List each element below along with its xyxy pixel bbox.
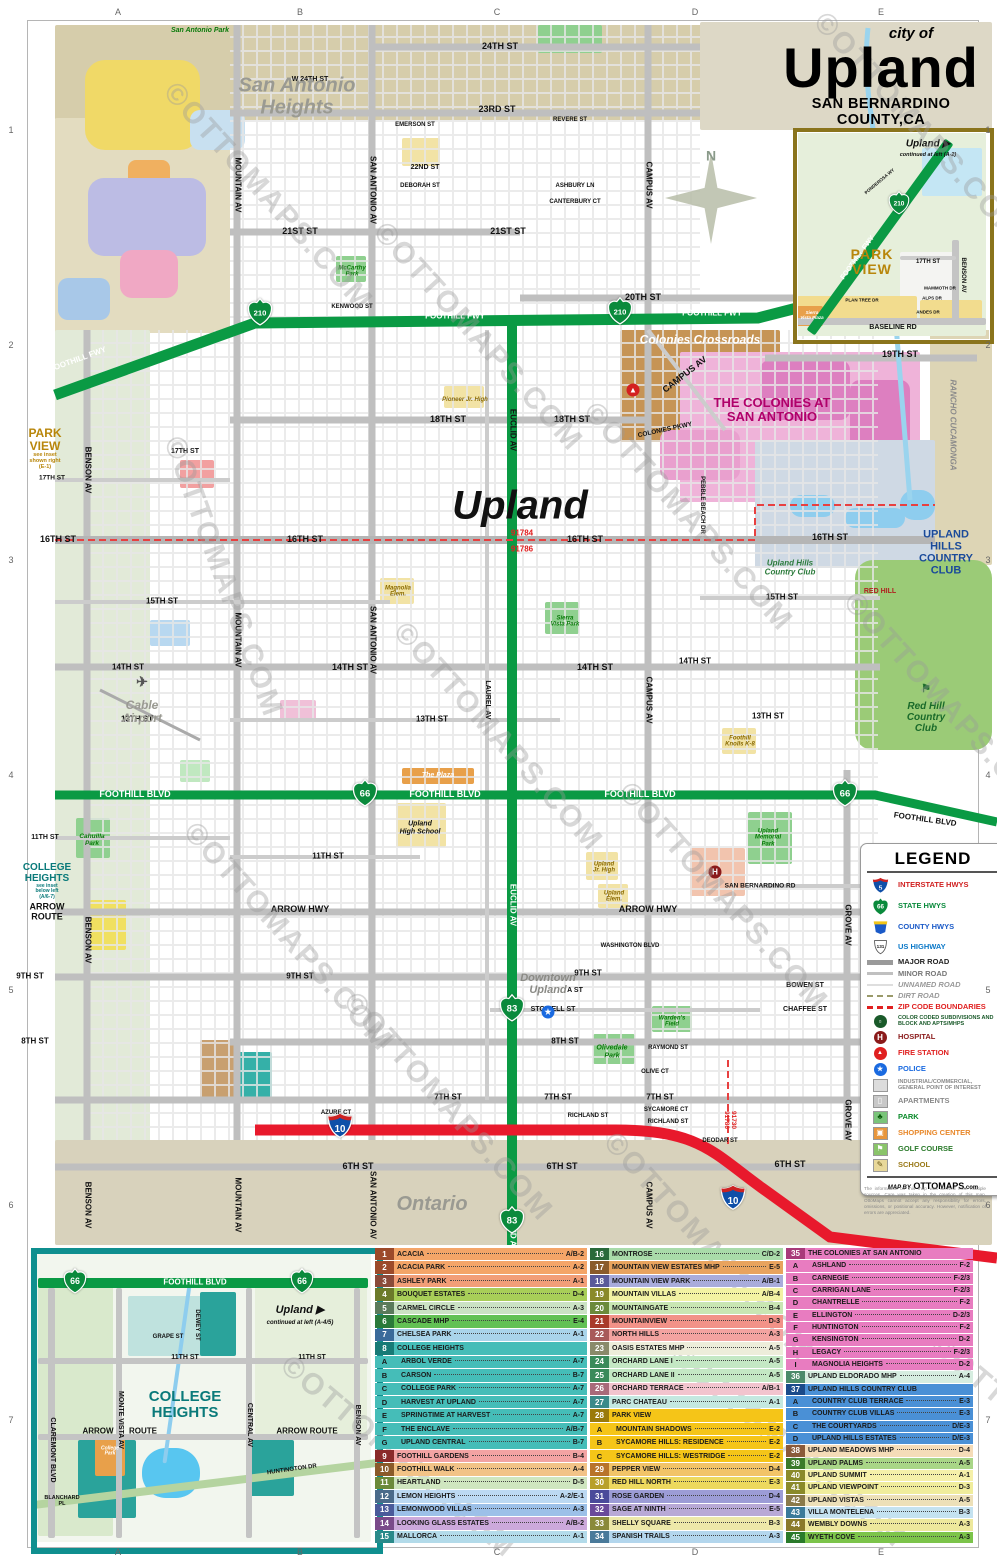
index-column-3: 35THE COLONIES AT SAN ANTONIOAASHLANDF-2…: [786, 1248, 973, 1544]
index-grid-reference: A-7: [573, 1412, 584, 1419]
index-entry: 43VILLA MONTELENAB-3: [786, 1507, 973, 1518]
grid-axis-number: 3: [8, 555, 13, 565]
index-grid-reference: F-2/3: [954, 1287, 970, 1294]
legend-item-label: DIRT ROAD: [898, 992, 940, 1000]
index-sub-entry: DUPLAND HILLS ESTATESD/E-3: [786, 1433, 973, 1444]
index-entry-number: D: [786, 1433, 805, 1444]
index-grid-reference: C/D-2: [762, 1251, 780, 1258]
index-grid-reference: A-1: [573, 1331, 584, 1338]
index-sub-entry: DHARVEST AT UPLANDA-7: [375, 1396, 587, 1408]
legend-item-label: COLOR CODED SUBDIVISIONS AND BLOCK AND A…: [898, 1015, 997, 1027]
index-entry-name: ASHLEY PARK: [397, 1278, 447, 1285]
index-grid-reference: B-3: [769, 1520, 780, 1527]
index-entry: 5CARMEL CIRCLEA-3: [375, 1302, 587, 1314]
index-entry-name: CHELSEA PARK: [397, 1331, 451, 1338]
index-sub-entry: BCARSONB-7: [375, 1369, 587, 1381]
legend-item-label: US HIGHWAY: [898, 943, 946, 951]
golf-legend-icon: ⚑: [867, 1143, 893, 1156]
index-sub-entry: EELLINGTOND-2/3: [786, 1310, 973, 1321]
zip-legend-icon: [867, 1006, 893, 1009]
index-entry-number: 10: [375, 1463, 394, 1475]
index-dotted-leader: [475, 1508, 570, 1509]
index-grid-reference: A-7: [573, 1358, 584, 1365]
index-grid-reference: B-4: [769, 1305, 780, 1312]
index-entry-number: 21: [590, 1315, 609, 1327]
index-entry: 38UPLAND MEADOWS MHPD-4: [786, 1445, 973, 1456]
index-entry-name: MOUNTAINGATE: [612, 1305, 668, 1312]
index-sub-entry: DCHANTRELLEF-2: [786, 1297, 973, 1308]
index-dotted-leader: [457, 1468, 569, 1469]
index-entry-number: 9: [375, 1450, 394, 1462]
index-entry: 42UPLAND VISTASA-5: [786, 1495, 973, 1506]
index-grid-reference: A-1: [959, 1472, 970, 1479]
index-grid-reference: E-2: [769, 1426, 780, 1433]
legend-item: ▣SHOPPING CENTER: [867, 1127, 997, 1140]
index-sub-entry: ESPRINGTIME AT HARVESTA-7: [375, 1409, 587, 1421]
index-entry: 3ASHLEY PARKA-1: [375, 1275, 587, 1287]
index-entry-name: CARSON: [397, 1372, 431, 1379]
grid-axis-number: 7: [985, 1415, 990, 1425]
index-entry-name: ORCHARD LANE II: [612, 1372, 675, 1379]
shopping-legend-icon: ▣: [867, 1127, 893, 1140]
index-dotted-leader: [448, 1266, 569, 1267]
index-grid-reference: E-2: [769, 1439, 780, 1446]
index-grid-reference: A-7: [573, 1399, 584, 1406]
park-view-inset-border: [793, 128, 994, 344]
legend-item-label: MINOR ROAD: [898, 970, 947, 978]
index-entry-number: 7: [375, 1329, 394, 1341]
police-legend-icon: ★: [867, 1063, 893, 1076]
index-entry-number: 40: [786, 1470, 805, 1481]
index-entry-number: 42: [786, 1495, 805, 1506]
index-entry-name: COLLEGE HEIGHTS: [397, 1345, 464, 1352]
index-grid-reference: A-3: [769, 1533, 780, 1540]
index-entry-number: 6: [375, 1315, 394, 1327]
index-entry-number: 29: [590, 1463, 609, 1475]
index-entry-number: 2: [375, 1261, 394, 1273]
grid-axis-number: 4: [985, 770, 990, 780]
index-dotted-leader: [479, 1401, 570, 1402]
index-entry-name: ROSE GARDEN: [612, 1493, 664, 1500]
svg-text:131: 131: [876, 945, 884, 950]
index-entry-name: SYCAMORE HILLS: WESTRIDGE: [612, 1453, 725, 1460]
index-entry-name: MOUNTAINVIEW: [612, 1318, 667, 1325]
index-dotted-leader: [880, 1425, 949, 1426]
legend-item-label: POLICE: [898, 1065, 926, 1073]
index-sub-entry: FHUNTINGTONF-2: [786, 1322, 973, 1333]
legend-item-label: COUNTY HWYS: [898, 923, 954, 931]
index-entry-number: 37: [786, 1384, 805, 1395]
major-legend-icon: [867, 960, 893, 965]
index-entry-name: THE ENCLAVE: [397, 1426, 450, 1433]
index-entry-number: 22: [590, 1329, 609, 1341]
index-dotted-leader: [897, 1449, 956, 1450]
legend-item-label: GOLF COURSE: [898, 1145, 953, 1153]
index-entry-number: 39: [786, 1458, 805, 1469]
index-entry-number: B: [786, 1273, 805, 1284]
index-grid-reference: A-3: [959, 1521, 970, 1528]
index-dotted-leader: [669, 1508, 766, 1509]
index-entry-number: G: [786, 1334, 805, 1345]
grid-axis-letter: E: [878, 7, 884, 17]
legend-box: LEGEND 5INTERSTATE HWYS66STATE HWYSCOUNT…: [860, 843, 997, 1196]
index-entry-number: 20: [590, 1302, 609, 1314]
index-entry-name: NORTH HILLS: [612, 1331, 659, 1338]
index-entry-name: SYCAMORE HILLS: RESIDENCE: [612, 1439, 724, 1446]
index-entry-name: UPLAND SUMMIT: [808, 1472, 867, 1479]
index-entry-number: 33: [590, 1517, 609, 1529]
index-entry: 4BOUQUET ESTATESD-4: [375, 1288, 587, 1300]
index-dotted-leader: [662, 1333, 766, 1334]
index-entry: 29PEPPER VIEWD-4: [590, 1463, 783, 1475]
grid-axis-letter: B: [297, 7, 303, 17]
minor-legend-icon: [867, 972, 893, 975]
index-entry-number: 38: [786, 1445, 805, 1456]
legend-item: ▲FIRE STATION: [867, 1047, 997, 1060]
index-entry: 1ACACIAA/B-2: [375, 1248, 587, 1260]
index-grid-reference: A-3: [573, 1506, 584, 1513]
legend-item: ZIP CODE BOUNDARIES: [867, 1003, 997, 1011]
index-entry-number: 19: [590, 1288, 609, 1300]
index-sub-entry: CTHE COURTYARDSD/E-3: [786, 1421, 973, 1432]
index-grid-reference: D-2/3: [953, 1312, 970, 1319]
index-entry-number: G: [375, 1436, 394, 1448]
index-entry-number: E: [375, 1409, 394, 1421]
index-entry-name: LEMONWOOD VILLAS: [397, 1506, 472, 1513]
legend-item-label: UNNAMED ROAD: [898, 981, 961, 989]
index-entry-number: E: [786, 1310, 805, 1321]
index-entry-name: RED HILL NORTH: [612, 1479, 671, 1486]
index-entry-name: HEARTLAND: [397, 1479, 441, 1486]
index-grid-reference: A/B-2: [566, 1251, 584, 1258]
index-entry-name: MONTROSE: [612, 1251, 652, 1258]
legend-item: ▫COLOR CODED SUBDIVISIONS AND BLOCK AND …: [867, 1015, 997, 1028]
index-entry-name: ASHLAND: [808, 1262, 846, 1269]
apartments-legend-icon: ▯: [867, 1095, 893, 1108]
index-entry: 19MOUNTAIN VILLASA/B-4: [590, 1288, 783, 1300]
index-dotted-leader: [862, 1326, 957, 1327]
index-entry: 6CASCADE MHPE-4: [375, 1315, 587, 1327]
index-entry: 15MALLORCAA-1: [375, 1531, 587, 1543]
index-grid-reference: D-4: [769, 1466, 780, 1473]
grid-axis-number: 3: [985, 555, 990, 565]
index-entry-number: A: [786, 1396, 805, 1407]
index-entry-name: UPLAND VIEWPOINT: [808, 1484, 878, 1491]
svg-text:5: 5: [878, 885, 882, 892]
index-sub-entry: FTHE ENCLAVEA/B-7: [375, 1423, 587, 1435]
us-legend-icon: 131: [867, 938, 893, 955]
index-grid-reference: F-2: [960, 1262, 971, 1269]
index-dotted-leader: [673, 1535, 766, 1536]
index-grid-reference: A/B-2: [566, 1520, 584, 1527]
index-dotted-leader: [671, 1307, 766, 1308]
index-entry-name: PARC CHATEAU: [612, 1399, 667, 1406]
index-entry-number: 8: [375, 1342, 394, 1354]
index-sub-entry: CCOLLEGE PARKA-7: [375, 1383, 587, 1395]
index-dotted-leader: [877, 1511, 955, 1512]
college-heights-inset-border: [31, 1248, 383, 1554]
map-disclaimer: The information on this map was derived …: [864, 1186, 986, 1216]
index-entry-number: 4: [375, 1288, 394, 1300]
index-grid-reference: A-3: [573, 1305, 584, 1312]
index-sub-entry: CCARRIGAN LANEF-2/3: [786, 1285, 973, 1296]
index-entry: 7CHELSEA PARKA-1: [375, 1329, 587, 1341]
index-entry-number: 27: [590, 1396, 609, 1408]
index-entry-name: ACACIA PARK: [397, 1264, 445, 1271]
index-entry-number: F: [375, 1423, 394, 1435]
index-entry: 8COLLEGE HEIGHTS: [375, 1342, 587, 1354]
index-grid-reference: D-2: [959, 1361, 970, 1368]
index-entry-number: 25: [590, 1369, 609, 1381]
index-grid-reference: F-2: [960, 1324, 971, 1331]
index-entry-number: 36: [786, 1371, 805, 1382]
index-grid-reference: A-1: [573, 1533, 584, 1540]
upland-city-map-sheet: 24TH STW 24TH STSan Antonio ParkSan Anto…: [0, 0, 997, 1562]
index-entry-number: 30: [590, 1477, 609, 1489]
index-entry-name: ORCHARD TERRACE: [612, 1385, 684, 1392]
dirt-legend-icon: [867, 995, 893, 997]
index-entry: 39UPLAND PALMSA-5: [786, 1458, 973, 1469]
legend-item-label: MAJOR ROAD: [898, 958, 949, 966]
legend-item-label: INDUSTRIAL/COMMERCIAL, GENERAL POINT OF …: [898, 1079, 997, 1091]
index-entry-name: UPLAND CENTRAL: [397, 1439, 466, 1446]
index-dotted-leader: [695, 1428, 766, 1429]
grid-axis-letter: C: [494, 7, 501, 17]
legend-item: ▯APARTMENTS: [867, 1095, 997, 1108]
legend-item: MAJOR ROAD: [867, 958, 997, 966]
index-grid-reference: A/B-4: [762, 1291, 780, 1298]
index-entry-name: THE COLONIES AT SAN ANTONIO: [808, 1250, 922, 1257]
index-dotted-leader: [900, 1437, 950, 1438]
index-entry-number: 31: [590, 1490, 609, 1502]
index-grid-reference: D-4: [573, 1291, 584, 1298]
index-dotted-leader: [676, 1360, 766, 1361]
index-grid-reference: B-3: [959, 1509, 970, 1516]
index-entry-name: ACACIA: [397, 1251, 424, 1258]
index-entry-number: 41: [786, 1482, 805, 1493]
index-entry-name: LEMON HEIGHTS: [397, 1493, 455, 1500]
grid-axis-number: 2: [8, 340, 13, 350]
index-dotted-leader: [897, 1412, 956, 1413]
index-entry: 21MOUNTAINVIEWD-3: [590, 1315, 783, 1327]
index-dotted-leader: [849, 1264, 956, 1265]
page-title: Upland: [770, 41, 992, 94]
index-entry-name: ORCHARD LANE I: [612, 1358, 673, 1365]
index-entry-name: UPLAND HILLS ESTATES: [808, 1435, 897, 1442]
index-dotted-leader: [874, 1289, 951, 1290]
index-sub-entry: GUPLAND CENTRALB-7: [375, 1436, 587, 1448]
grid-axis-number: 6: [985, 1200, 990, 1210]
index-entry-number: 35: [786, 1248, 805, 1259]
legend-item: 5INTERSTATE HWYS: [867, 877, 997, 894]
index-entry-name: MOUNTAIN VIEW ESTATES MHP: [612, 1264, 720, 1271]
index-sub-entry: HLEGACYF-2/3: [786, 1347, 973, 1358]
index-entry-name: CARRIGAN LANE: [808, 1287, 871, 1294]
index-grid-reference: E-3: [959, 1410, 970, 1417]
index-entry: 30RED HILL NORTHE-3: [590, 1477, 783, 1489]
index-entry-name: LEGACY: [808, 1349, 841, 1356]
index-grid-reference: D-4: [959, 1447, 970, 1454]
index-entry-number: H: [786, 1347, 805, 1358]
legend-item: 66STATE HWYS: [867, 897, 997, 915]
index-entry-number: F: [786, 1322, 805, 1333]
index-grid-reference: A-4: [573, 1466, 584, 1473]
unnamed-legend-icon: [867, 984, 893, 986]
index-sub-entry: ACOUNTRY CLUB TERRACEE-3: [786, 1396, 973, 1407]
index-grid-reference: A-3: [959, 1534, 970, 1541]
index-dotted-leader: [450, 1280, 570, 1281]
index-sub-entry: IMAGNOLIA HEIGHTSD-2: [786, 1359, 973, 1370]
index-dotted-leader: [723, 1266, 766, 1267]
index-entry-name: COLLEGE PARK: [397, 1385, 456, 1392]
grid-axis-letter: D: [692, 7, 699, 17]
index-entry-name: OASIS ESTATES MHP: [612, 1345, 684, 1352]
index-dotted-leader: [452, 1320, 570, 1321]
index-entry-name: CARNEGIE: [808, 1275, 849, 1282]
index-grid-reference: A/B-7: [566, 1426, 584, 1433]
index-entry-number: 43: [786, 1507, 805, 1518]
index-entry-number: A: [590, 1423, 609, 1435]
index-entry-name: VILLA MONTELENA: [808, 1509, 874, 1516]
index-entry-number: 11: [375, 1477, 394, 1489]
index-grid-reference: A-5: [769, 1358, 780, 1365]
index-dotted-leader: [667, 1495, 766, 1496]
legend-title: LEGEND: [867, 849, 997, 873]
index-entry-name: ARBOL VERDE: [397, 1358, 452, 1365]
grid-axis-number: 7: [8, 1415, 13, 1425]
index-dotted-leader: [468, 1293, 570, 1294]
index-dotted-leader: [459, 1387, 570, 1388]
index-entry: 12LEMON HEIGHTSA-2/E-1: [375, 1490, 587, 1502]
school-legend-icon: ✎: [867, 1159, 893, 1172]
fire-legend-icon: ▲: [867, 1047, 893, 1060]
index-entry: 36UPLAND ELDORADO MHPA-4: [786, 1371, 973, 1382]
index-entry-name: UPLAND VISTAS: [808, 1497, 864, 1504]
index-dotted-leader: [472, 1455, 570, 1456]
index-sub-entry: BCARNEGIEF-2/3: [786, 1273, 973, 1284]
index-entry-number: A: [375, 1356, 394, 1368]
index-entry-number: 26: [590, 1383, 609, 1395]
legend-item-label: APARTMENTS: [898, 1097, 950, 1105]
legend-item-label: SHOPPING CENTER: [898, 1129, 971, 1137]
index-dotted-leader: [844, 1351, 950, 1352]
index-dotted-leader: [655, 1253, 758, 1254]
grid-axis-number: 6: [8, 1200, 13, 1210]
index-dotted-leader: [727, 1441, 766, 1442]
street-grid-texture: [230, 25, 700, 330]
index-dotted-leader: [866, 1462, 956, 1463]
index-grid-reference: D-3: [959, 1484, 970, 1491]
legend-item: ⚑GOLF COURSE: [867, 1143, 997, 1156]
index-entry-name: UPLAND PALMS: [808, 1460, 863, 1467]
index-entry-name: KENSINGTON: [808, 1336, 859, 1343]
index-entry-number: 24: [590, 1356, 609, 1368]
county-legend-icon: [867, 918, 893, 935]
index-entry-name: SPANISH TRAILS: [612, 1533, 670, 1540]
index-entry-name: COUNTRY CLUB TERRACE: [808, 1398, 903, 1405]
index-entry: 25ORCHARD LANE IIA-5: [590, 1369, 783, 1381]
index-entry-number: 16: [590, 1248, 609, 1260]
index-entry-number: 34: [590, 1531, 609, 1543]
index-entry-number: C: [590, 1450, 609, 1462]
index-entry-name: LOOKING GLASS ESTATES: [397, 1520, 489, 1527]
index-entry-name: SHELLY SQUARE: [612, 1520, 671, 1527]
index-entry-number: C: [375, 1383, 394, 1395]
index-dotted-leader: [454, 1333, 569, 1334]
index-grid-reference: A-1: [573, 1278, 584, 1285]
index-grid-reference: E-2: [769, 1453, 780, 1460]
index-entry: 40UPLAND SUMMITA-1: [786, 1470, 973, 1481]
index-entry-name: UPLAND MEADOWS MHP: [808, 1447, 894, 1454]
index-dotted-leader: [881, 1486, 955, 1487]
index-entry-name: MAGNOLIA HEIGHTS: [808, 1361, 883, 1368]
index-entry: 32SAGE AT NINTHE-5: [590, 1504, 783, 1516]
legend-item: ★POLICE: [867, 1063, 997, 1076]
legend-item-label: PARK: [898, 1113, 919, 1121]
index-dotted-leader: [862, 1338, 956, 1339]
legend-item-label: INTERSTATE HWYS: [898, 881, 969, 889]
index-entry: 34SPANISH TRAILSA-3: [590, 1531, 783, 1543]
index-dotted-leader: [678, 1374, 766, 1375]
index-entry-number: 32: [590, 1504, 609, 1516]
index-entry-name: UPLAND ELDORADO MHP: [808, 1373, 897, 1380]
index-entry-number: 17: [590, 1261, 609, 1273]
index-entry: 24ORCHARD LANE IA-5: [590, 1356, 783, 1368]
grid-axis-letter: E: [878, 1547, 884, 1557]
index-grid-reference: F-2: [960, 1299, 971, 1306]
index-grid-reference: A-3: [769, 1331, 780, 1338]
legend-item-label: FIRE STATION: [898, 1049, 949, 1057]
index-entry: 28PARK VIEW: [590, 1409, 783, 1421]
index-sub-entry: AMOUNTAIN SHADOWSE-2: [590, 1423, 783, 1435]
grid-axis-letter: D: [692, 1547, 699, 1557]
index-entry: 45WYETH COVEA-3: [786, 1532, 973, 1543]
legend-item: COUNTY HWYS: [867, 918, 997, 935]
index-entry-number: B: [786, 1408, 805, 1419]
index-entry-number: B: [590, 1436, 609, 1448]
index-entry-name: WYETH COVE: [808, 1534, 855, 1541]
legend-item: HHOSPITAL: [867, 1031, 997, 1044]
index-entry-number: 14: [375, 1517, 394, 1529]
index-entry-name: HARVEST AT UPLAND: [397, 1399, 476, 1406]
index-sub-entry: GKENSINGTOND-2: [786, 1334, 973, 1345]
index-dotted-leader: [886, 1363, 956, 1364]
index-dotted-leader: [679, 1293, 759, 1294]
index-dotted-leader: [867, 1499, 956, 1500]
index-grid-reference: B-7: [573, 1439, 584, 1446]
index-grid-reference: D-5: [573, 1479, 584, 1486]
index-dotted-leader: [674, 1522, 766, 1523]
legend-item-label: ZIP CODE BOUNDARIES: [898, 1003, 986, 1011]
index-grid-reference: D-2: [959, 1336, 970, 1343]
legend-item: ✎SCHOOL: [867, 1159, 997, 1172]
legend-item-label: SCHOOL: [898, 1161, 930, 1169]
index-dotted-leader: [453, 1428, 563, 1429]
index-entry-name: CASCADE MHP: [397, 1318, 449, 1325]
index-dotted-leader: [455, 1360, 570, 1361]
legend-item: 131US HIGHWAY: [867, 938, 997, 955]
index-dotted-leader: [852, 1277, 951, 1278]
map-title-block: city of Upland SAN BERNARDINO COUNTY,CA: [770, 26, 992, 128]
index-dotted-leader: [670, 1401, 766, 1402]
index-grid-reference: E-4: [573, 1318, 584, 1325]
industrial-legend-icon: [867, 1079, 893, 1092]
index-entry-number: 15: [375, 1531, 394, 1543]
index-dotted-leader: [670, 1320, 766, 1321]
index-grid-reference: A-7: [573, 1385, 584, 1392]
legend-item: INDUSTRIAL/COMMERCIAL, GENERAL POINT OF …: [867, 1079, 997, 1092]
index-sub-entry: AASHLANDF-2: [786, 1260, 973, 1271]
